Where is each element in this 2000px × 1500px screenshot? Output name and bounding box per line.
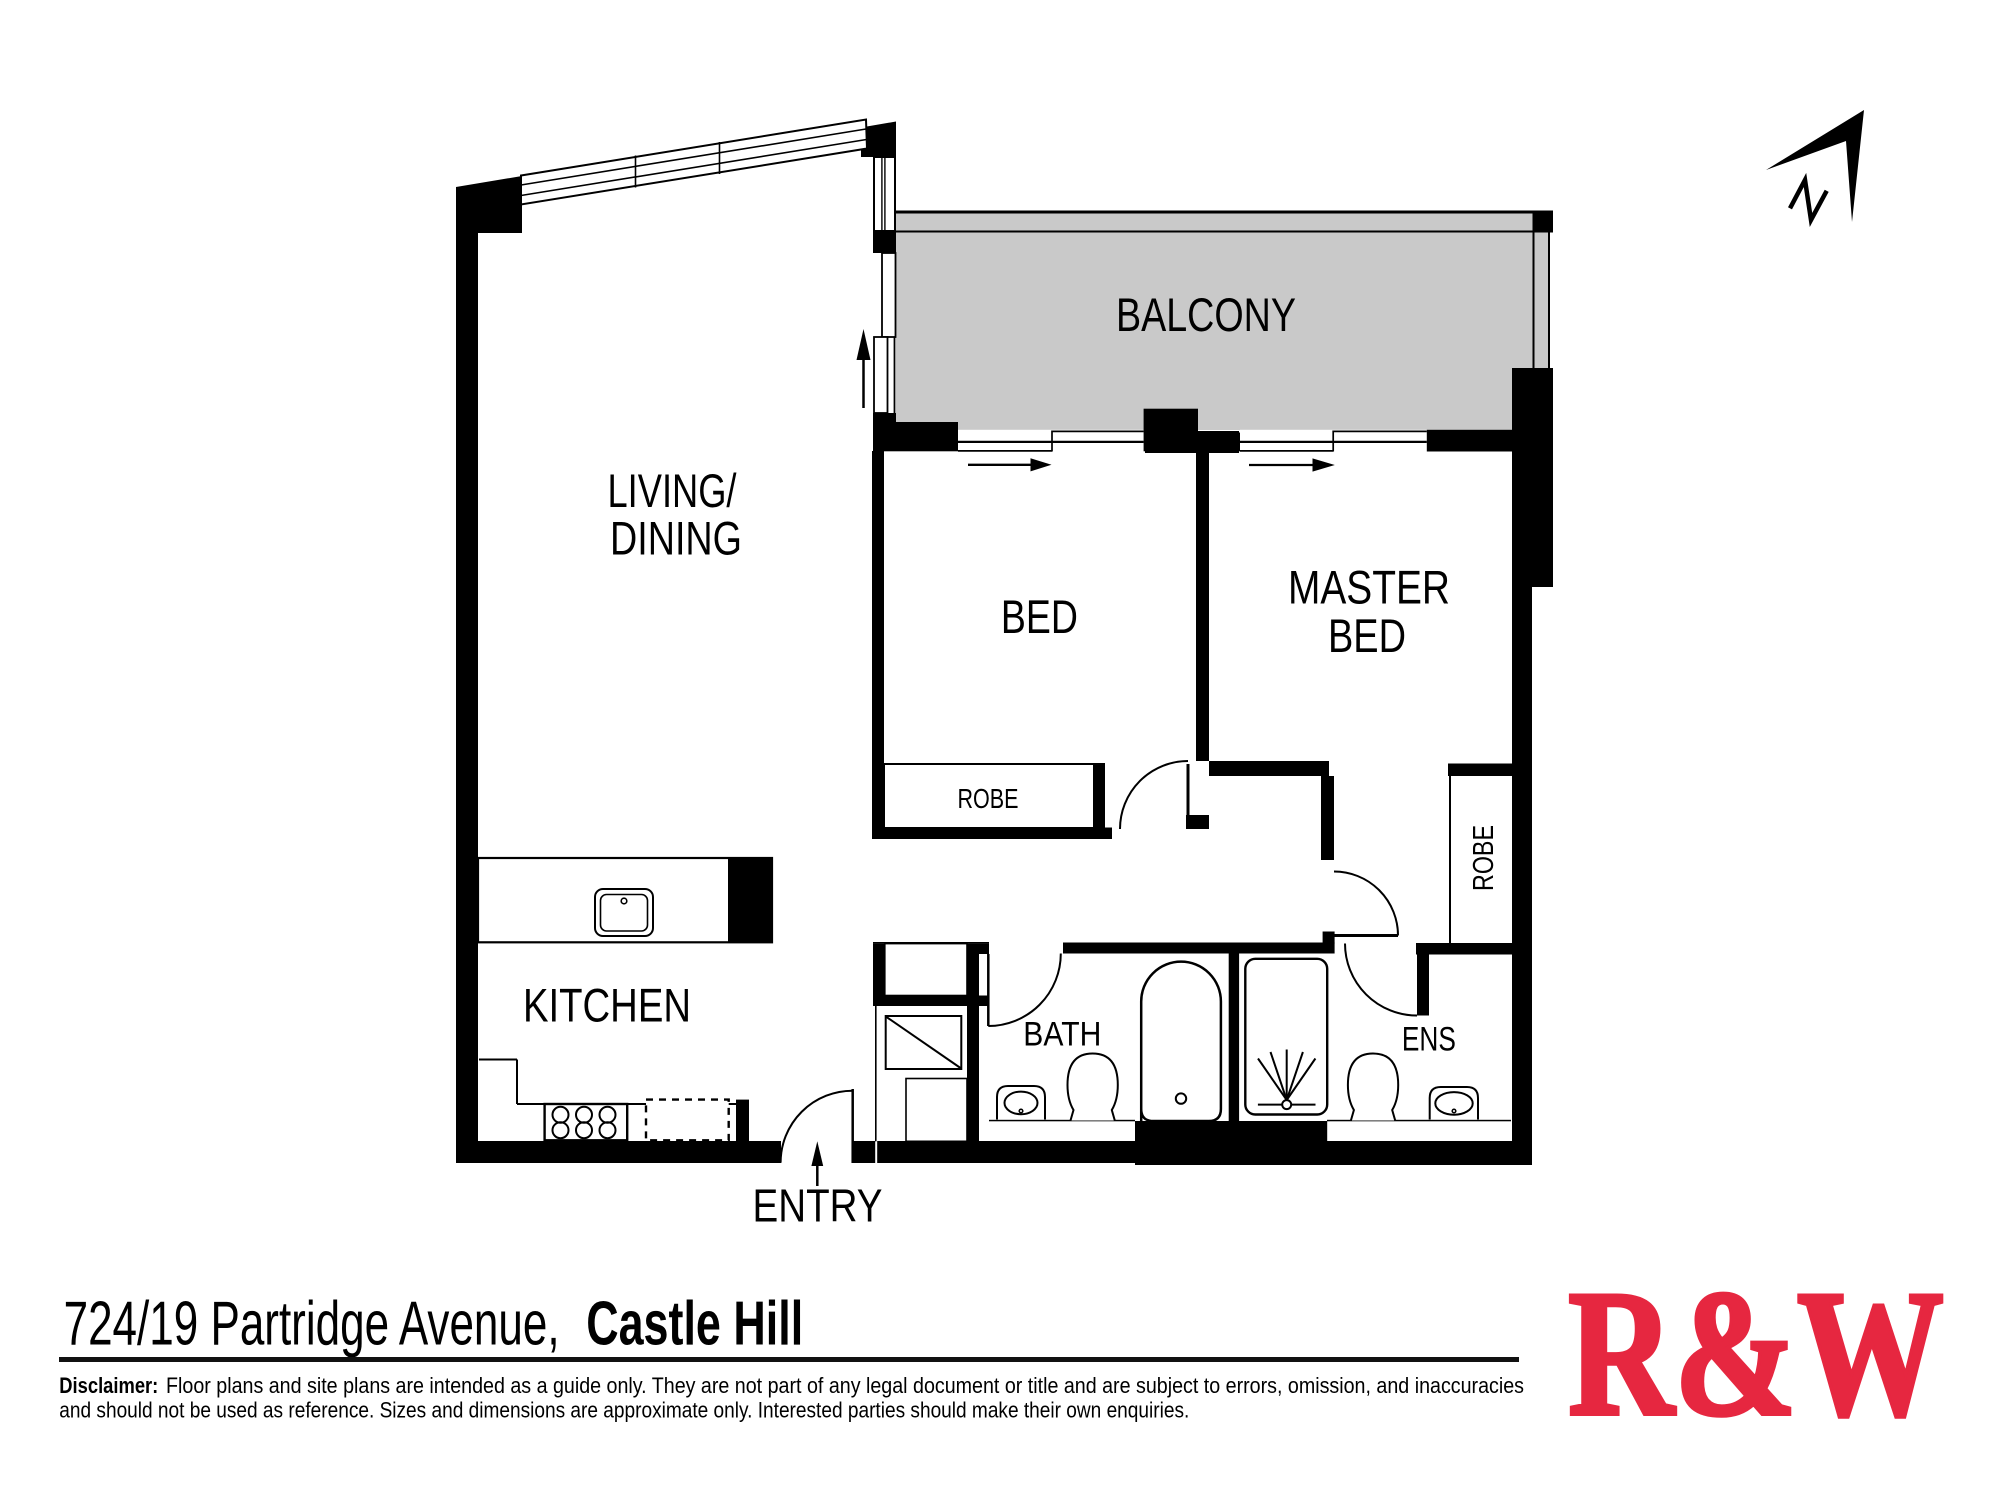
svg-text:BED: BED (1328, 609, 1406, 662)
svg-text:724/19 Partridge Avenue,: 724/19 Partridge Avenue, (64, 1290, 560, 1359)
svg-text:BED: BED (1001, 590, 1078, 643)
svg-text:MASTER: MASTER (1288, 561, 1450, 614)
svg-text:BALCONY: BALCONY (1116, 288, 1296, 341)
svg-text:Castle Hill: Castle Hill (586, 1290, 803, 1359)
svg-text:ROBE: ROBE (1468, 825, 1500, 891)
svg-text:KITCHEN: KITCHEN (523, 978, 691, 1031)
svg-text:BATH: BATH (1023, 1016, 1101, 1054)
svg-text:LIVING/: LIVING/ (608, 464, 738, 517)
svg-text:ROBE: ROBE (958, 783, 1019, 814)
svg-text:Disclaimer:: Disclaimer: (59, 1373, 158, 1398)
svg-text:DINING: DINING (610, 512, 742, 565)
svg-text:R&W: R&W (1568, 1254, 1944, 1454)
svg-text:ENS: ENS (1402, 1021, 1456, 1059)
svg-text:ENTRY: ENTRY (753, 1179, 883, 1231)
svg-text:Floor plans and site plans are: Floor plans and site plans are intended … (166, 1373, 1524, 1398)
svg-text:and should not be used as refe: and should not be used as reference. Siz… (59, 1398, 1189, 1423)
